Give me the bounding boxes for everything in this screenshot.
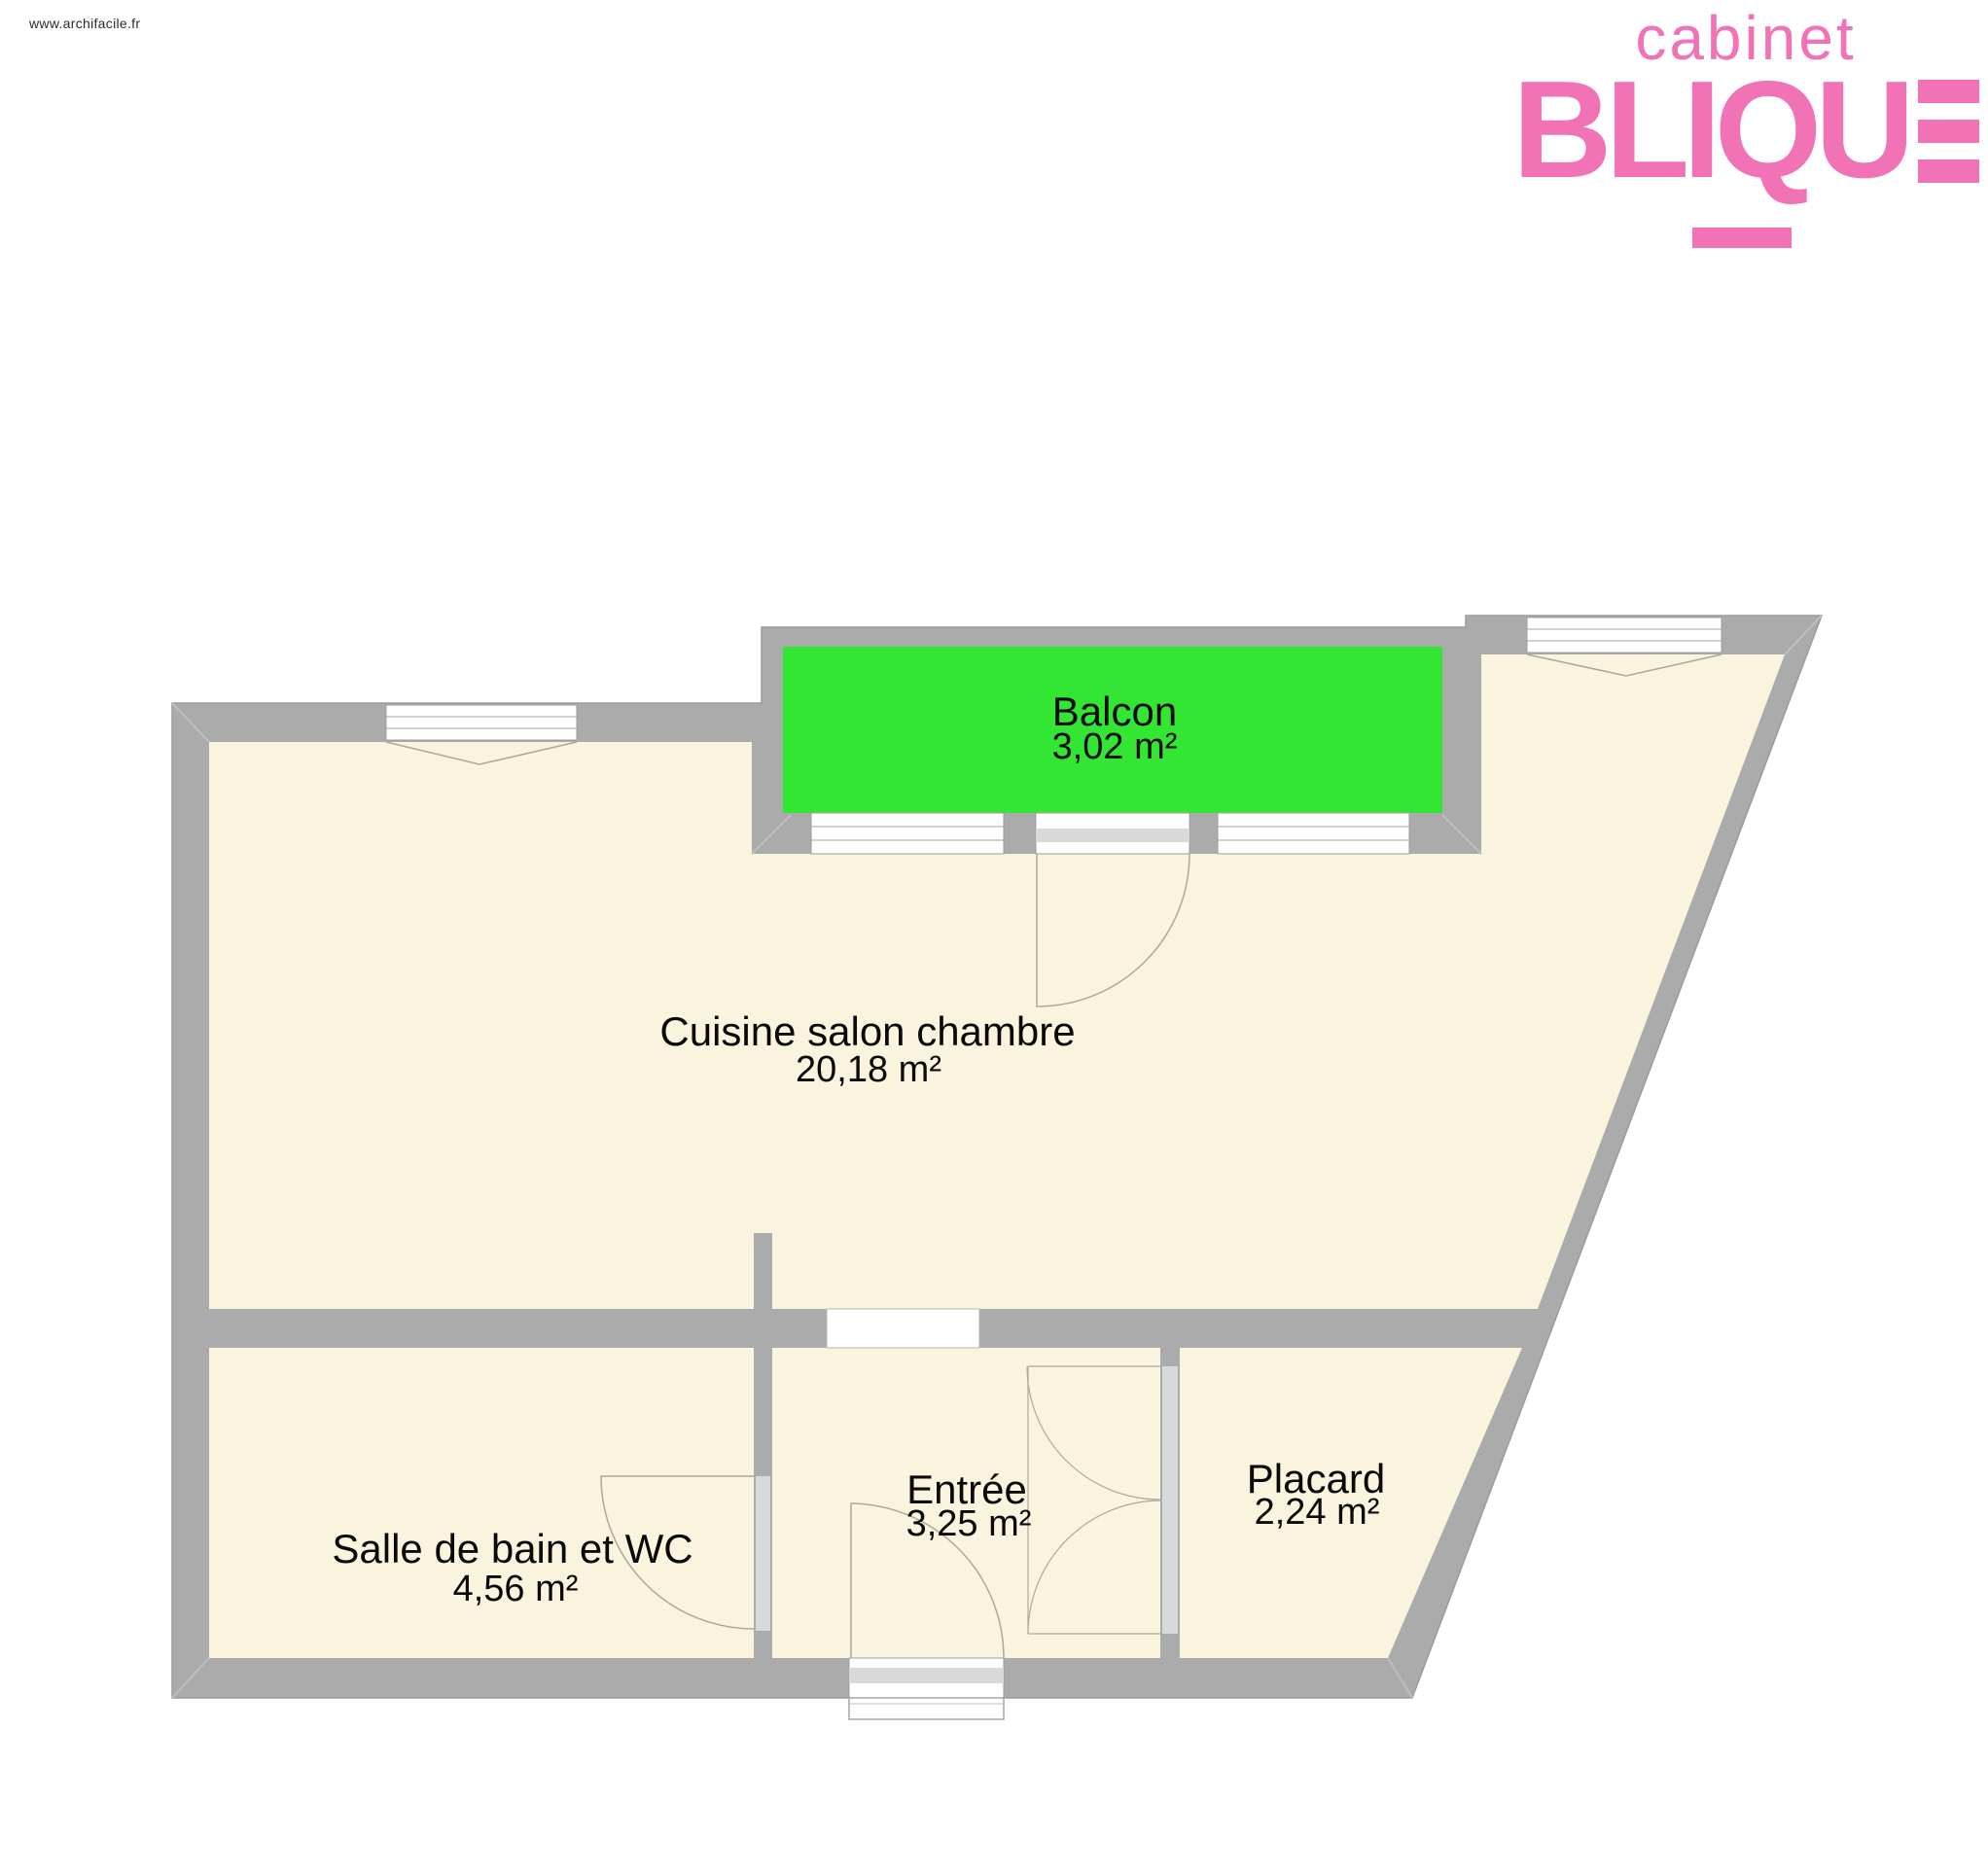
label-salle-de-bain-area: 4,56 m² [453, 1569, 579, 1609]
cabinet-blique-logo: cabinet BLIQU [1512, 6, 1979, 185]
passage-opening[interactable] [827, 1309, 979, 1348]
label-placard-area: 2,24 m² [1255, 1492, 1380, 1533]
label-cuisine-area: 20,18 m² [796, 1049, 941, 1090]
floor-plan: Balcon 3,02 m² Cuisine salon chambre 20,… [0, 0, 1988, 1871]
entrance-threshold [849, 1698, 1004, 1719]
label-salle-de-bain: Salle de bain et WC [332, 1526, 692, 1571]
room-salle-de-bain[interactable] [209, 1348, 754, 1658]
label-balcon-area: 3,02 m² [1052, 726, 1178, 767]
logo-blique-text: BLIQU [1512, 77, 1979, 185]
logo-q-underline [1692, 228, 1792, 248]
logo-e-icon [1918, 80, 1979, 183]
label-cuisine: Cuisine salon chambre [659, 1008, 1075, 1054]
balcony-window-left[interactable] [811, 813, 1004, 854]
wall-stub [754, 1233, 772, 1311]
label-entree-area: 3,25 m² [906, 1503, 1032, 1544]
balcony-window-right[interactable] [1218, 813, 1409, 854]
